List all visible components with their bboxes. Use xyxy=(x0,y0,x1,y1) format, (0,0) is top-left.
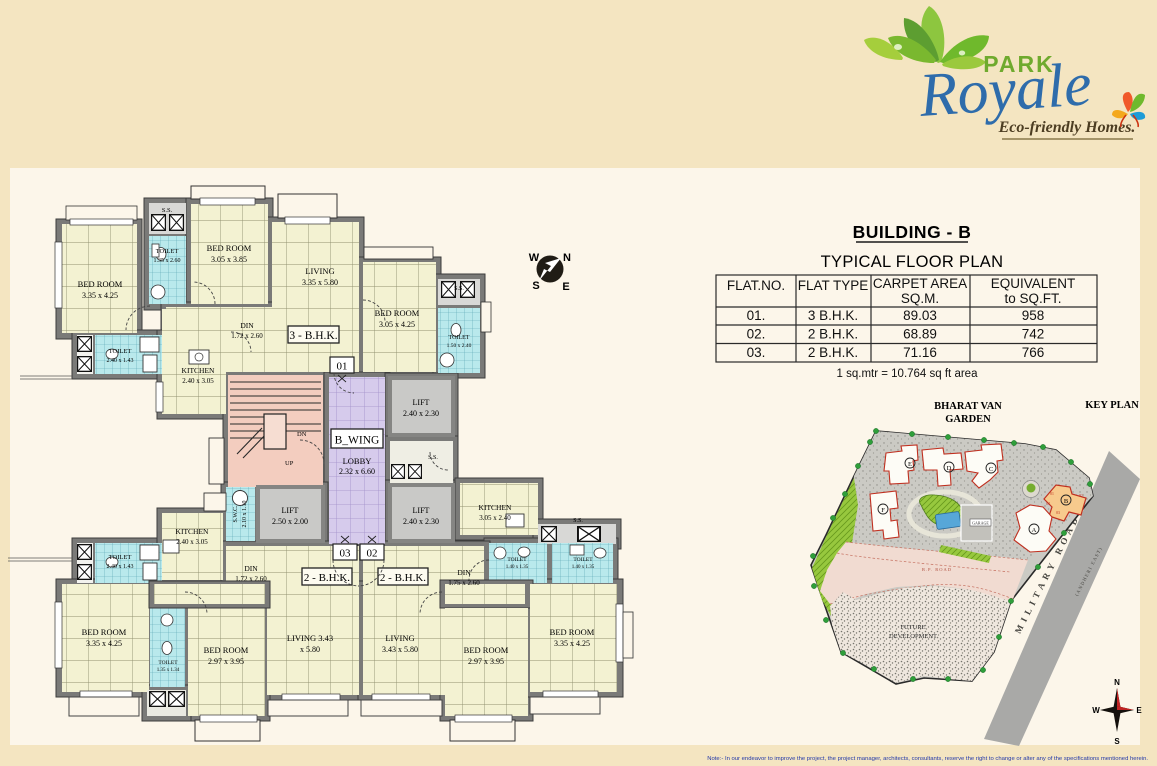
svg-text:UP: UP xyxy=(285,460,294,467)
svg-text:3.05 x 3.85: 3.05 x 3.85 xyxy=(211,255,247,264)
svg-text:FUTURE: FUTURE xyxy=(900,624,925,631)
svg-text:766: 766 xyxy=(1022,345,1045,360)
svg-text:2 B.H.K.: 2 B.H.K. xyxy=(808,327,858,342)
svg-text:71.16: 71.16 xyxy=(903,345,937,360)
svg-text:F: F xyxy=(881,507,885,514)
svg-text:89.03: 89.03 xyxy=(903,308,937,323)
svg-text:LIFT: LIFT xyxy=(282,506,299,515)
svg-text:BED ROOM: BED ROOM xyxy=(78,279,123,289)
svg-text:Note:- In our endeavor to impr: Note:- In our endeavor to improve the pr… xyxy=(707,756,1148,762)
svg-text:2.40 x 3.05: 2.40 x 3.05 xyxy=(182,377,214,385)
svg-text:1.35 x 2.60: 1.35 x 2.60 xyxy=(154,258,181,264)
svg-text:BUILDING - B: BUILDING - B xyxy=(853,222,972,242)
svg-text:E: E xyxy=(908,461,912,468)
svg-text:GARAGE: GARAGE xyxy=(972,521,989,526)
svg-text:TOILET: TOILET xyxy=(109,348,132,355)
svg-text:B_WING: B_WING xyxy=(335,435,380,447)
svg-text:68.89: 68.89 xyxy=(903,327,937,342)
svg-text:BED ROOM: BED ROOM xyxy=(204,645,249,655)
svg-text:2.40 x 2.30: 2.40 x 2.30 xyxy=(403,517,439,526)
svg-text:W: W xyxy=(529,252,540,264)
svg-text:2.40 x 3.05: 2.40 x 3.05 xyxy=(176,538,208,546)
svg-text:DIN: DIN xyxy=(240,321,254,330)
svg-text:x 5.80: x 5.80 xyxy=(300,645,320,654)
svg-text:DIN: DIN xyxy=(244,564,258,573)
svg-text:LOBBY: LOBBY xyxy=(343,456,372,466)
svg-text:2 B.H.K.: 2 B.H.K. xyxy=(808,345,858,360)
svg-text:2.40 x 1.43: 2.40 x 1.43 xyxy=(107,358,134,364)
svg-text:BED ROOM: BED ROOM xyxy=(464,645,509,655)
svg-text:KITCHEN: KITCHEN xyxy=(182,366,215,375)
svg-text:LIVING 3.43: LIVING 3.43 xyxy=(287,633,333,643)
svg-text:3.35 x 4.25: 3.35 x 4.25 xyxy=(86,639,122,648)
svg-text:3 B.H.K.: 3 B.H.K. xyxy=(808,308,858,323)
svg-text:958: 958 xyxy=(1022,308,1045,323)
svg-text:1.72 x 2.60: 1.72 x 2.60 xyxy=(231,332,263,340)
svg-text:04: 04 xyxy=(1046,502,1050,506)
svg-text:S.S.: S.S. xyxy=(162,207,173,214)
svg-text:B: B xyxy=(1064,498,1069,505)
svg-text:03: 03 xyxy=(1056,511,1060,515)
svg-text:S.S.: S.S. xyxy=(454,286,464,292)
svg-text:BED ROOM: BED ROOM xyxy=(82,627,127,637)
svg-text:2.97 x 3.95: 2.97 x 3.95 xyxy=(208,657,244,666)
svg-text:S.S.: S.S. xyxy=(428,455,438,461)
svg-text:FLAT.NO.: FLAT.NO. xyxy=(727,278,785,293)
svg-text:3.05 x 2.40: 3.05 x 2.40 xyxy=(479,514,511,522)
svg-text:KITCHEN: KITCHEN xyxy=(479,503,512,512)
svg-text:02: 02 xyxy=(367,548,378,560)
svg-text:DEVELOPMENT: DEVELOPMENT xyxy=(889,633,937,640)
svg-text:742: 742 xyxy=(1022,327,1045,342)
svg-text:TOILET: TOILET xyxy=(156,248,179,255)
svg-text:2.50 x 2.00: 2.50 x 2.00 xyxy=(272,517,308,526)
svg-text:1.72 x 2.60: 1.72 x 2.60 xyxy=(235,575,267,583)
svg-text:BED ROOM: BED ROOM xyxy=(550,627,595,637)
svg-text:BED ROOM: BED ROOM xyxy=(375,308,420,318)
svg-text:TOILET: TOILET xyxy=(109,554,132,561)
svg-text:N: N xyxy=(563,252,571,264)
svg-text:01: 01 xyxy=(1050,492,1054,496)
svg-text:LIFT: LIFT xyxy=(413,398,430,407)
svg-text:01: 01 xyxy=(337,361,348,373)
svg-text:E: E xyxy=(562,281,569,293)
svg-text:B.P. ROAD: B.P. ROAD xyxy=(922,567,952,572)
svg-text:C: C xyxy=(989,466,993,473)
svg-text:TOILET: TOILET xyxy=(507,557,527,563)
svg-text:01.: 01. xyxy=(747,308,766,323)
svg-text:03: 03 xyxy=(340,548,352,560)
svg-text:1 sq.mtr = 10.764 sq ft area: 1 sq.mtr = 10.764 sq ft area xyxy=(837,368,979,380)
svg-text:W: W xyxy=(1092,706,1100,715)
svg-text:2.10 x 1.10: 2.10 x 1.10 xyxy=(242,501,248,528)
svg-text:3.43 x 5.80: 3.43 x 5.80 xyxy=(382,645,418,654)
svg-text:DN: DN xyxy=(297,431,307,438)
svg-text:DIN: DIN xyxy=(457,568,471,577)
svg-text:2 - B.H.K.: 2 - B.H.K. xyxy=(380,572,426,584)
svg-text:N: N xyxy=(1114,678,1120,687)
svg-text:SQ.M.: SQ.M. xyxy=(901,291,939,306)
svg-text:S.S.: S.S. xyxy=(573,518,583,524)
svg-text:2.97 x 3.95: 2.97 x 3.95 xyxy=(468,657,504,666)
svg-text:2.32 x 6.60: 2.32 x 6.60 xyxy=(339,467,375,476)
svg-text:3.35 x 5.80: 3.35 x 5.80 xyxy=(302,278,338,287)
svg-text:2.40 x 2.30: 2.40 x 2.30 xyxy=(403,409,439,418)
svg-text:BHARAT VAN: BHARAT VAN xyxy=(934,401,1002,412)
svg-text:S: S xyxy=(532,280,539,292)
svg-text:TYPICAL FLOOR PLAN: TYPICAL FLOOR PLAN xyxy=(821,253,1004,271)
svg-text:GARDEN: GARDEN xyxy=(945,414,991,425)
svg-text:1.40 x 1.35: 1.40 x 1.35 xyxy=(572,565,595,570)
svg-text:1.75 x 2.60: 1.75 x 2.60 xyxy=(448,579,480,587)
svg-text:S.W.C.: S.W.C. xyxy=(233,505,239,522)
svg-text:LIFT: LIFT xyxy=(413,506,430,515)
svg-text:3.35 x 4.25: 3.35 x 4.25 xyxy=(82,291,118,300)
svg-text:02.: 02. xyxy=(747,327,766,342)
svg-text:LIVING: LIVING xyxy=(385,633,414,643)
svg-text:LIVING: LIVING xyxy=(305,266,334,276)
svg-text:A: A xyxy=(1032,527,1037,534)
svg-text:Eco-friendly Homes.: Eco-friendly Homes. xyxy=(998,119,1136,136)
svg-text:3.35 x 4.25: 3.35 x 4.25 xyxy=(554,639,590,648)
svg-text:CARPET AREA: CARPET AREA xyxy=(873,276,967,291)
svg-text:1.35 x 1.34: 1.35 x 1.34 xyxy=(157,668,180,673)
svg-text:2 - B.H.K.: 2 - B.H.K. xyxy=(304,572,350,584)
svg-text:to SQ.FT.: to SQ.FT. xyxy=(1004,291,1061,306)
svg-text:D: D xyxy=(947,465,952,472)
svg-text:KEY PLAN: KEY PLAN xyxy=(1085,400,1139,411)
svg-text:E: E xyxy=(1136,706,1142,715)
svg-text:BED ROOM: BED ROOM xyxy=(207,243,252,253)
svg-text:KITCHEN: KITCHEN xyxy=(176,527,209,536)
svg-text:1.40 x 1.35: 1.40 x 1.35 xyxy=(506,565,529,570)
svg-text:3 - B.H.K.: 3 - B.H.K. xyxy=(289,330,337,342)
svg-text:TOILET: TOILET xyxy=(573,557,593,563)
svg-text:S: S xyxy=(1114,737,1120,746)
svg-text:02: 02 xyxy=(1079,494,1083,498)
svg-text:03.: 03. xyxy=(747,345,766,360)
svg-text:1.50 x 2.40: 1.50 x 2.40 xyxy=(447,343,472,349)
svg-text:EQUIVALENT: EQUIVALENT xyxy=(991,276,1076,291)
svg-text:FLAT TYPE: FLAT TYPE xyxy=(798,278,869,293)
svg-text:2.40 x 1.43: 2.40 x 1.43 xyxy=(107,564,134,570)
svg-text:3.05 x 4.25: 3.05 x 4.25 xyxy=(379,320,415,329)
svg-text:TOILET: TOILET xyxy=(449,335,470,341)
svg-text:TOILET: TOILET xyxy=(158,660,178,666)
